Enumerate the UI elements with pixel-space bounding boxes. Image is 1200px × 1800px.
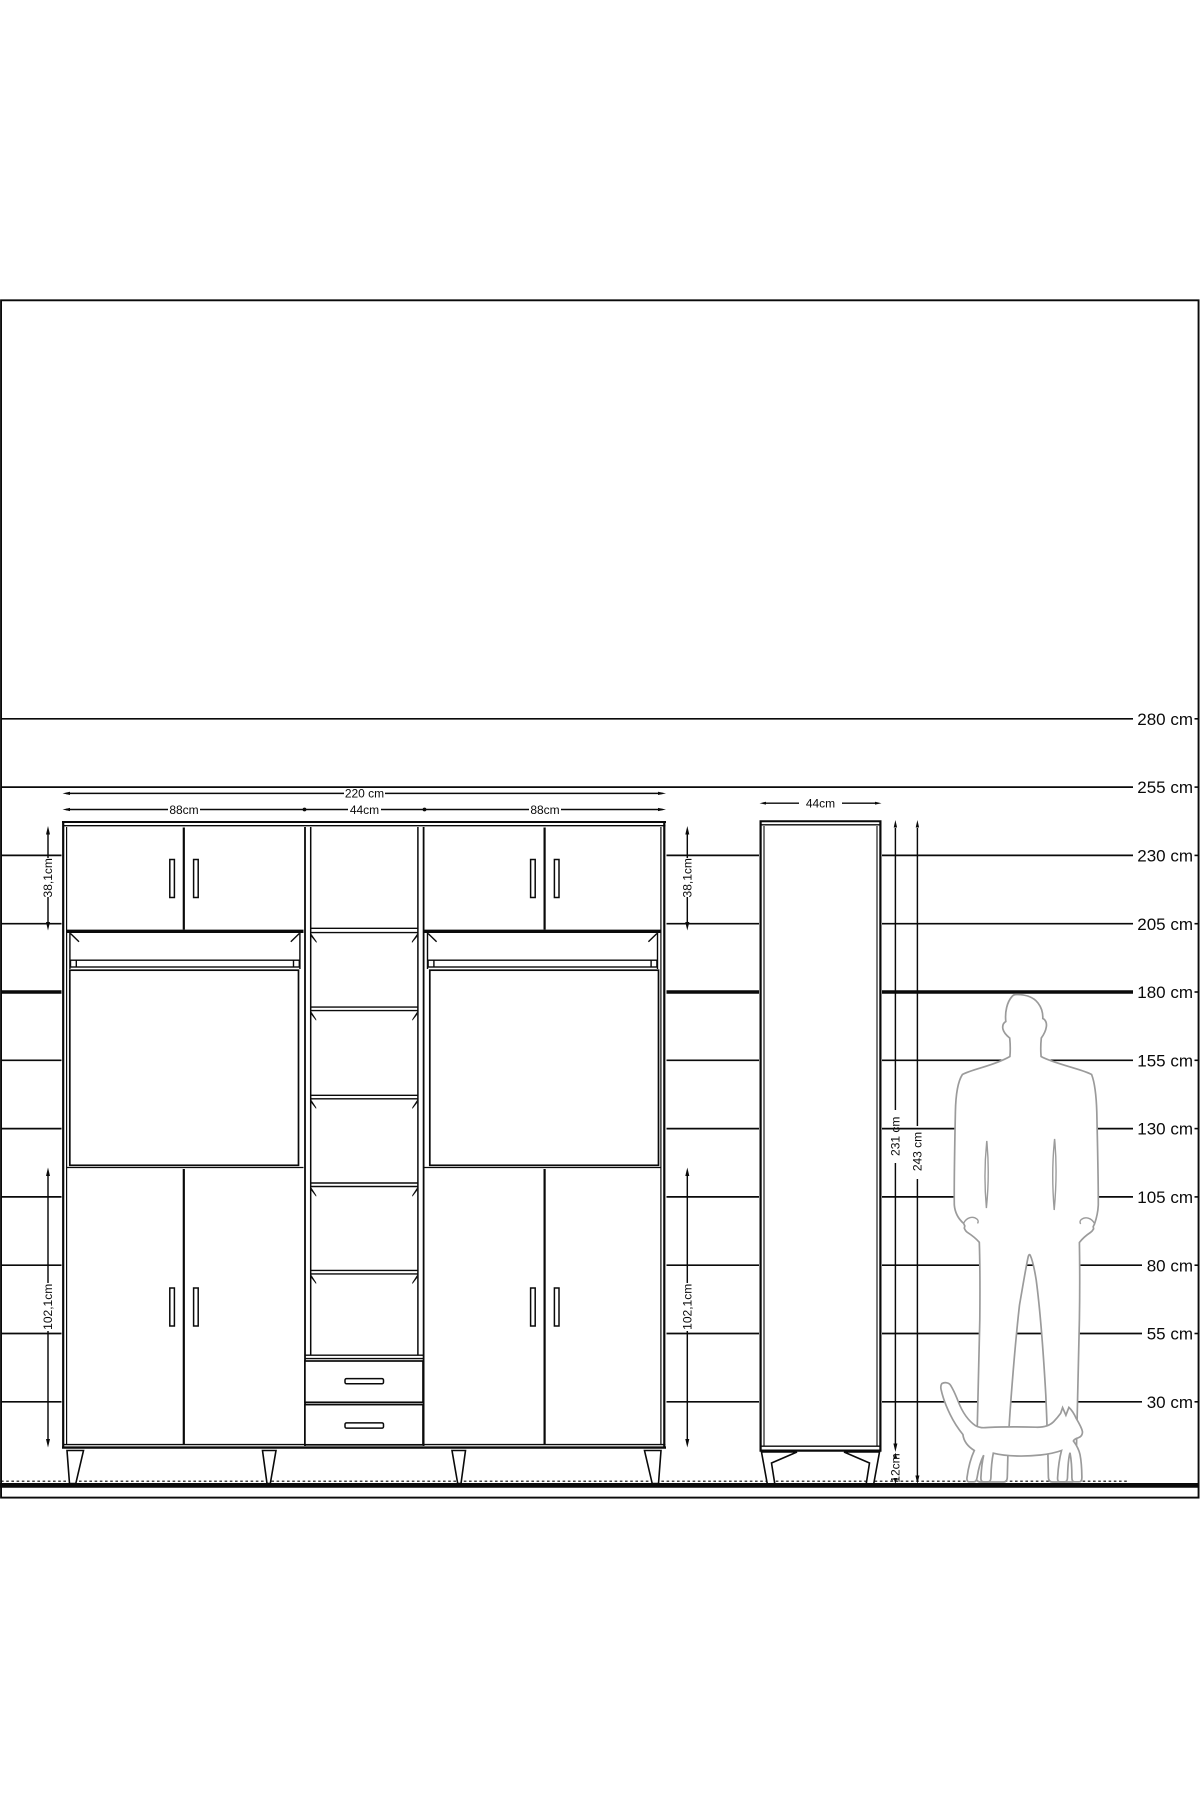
svg-text:55 cm: 55 cm xyxy=(1147,1325,1193,1344)
svg-text:180 cm: 180 cm xyxy=(1137,983,1193,1002)
svg-text:44cm: 44cm xyxy=(350,803,379,817)
svg-text:102,1cm: 102,1cm xyxy=(681,1284,695,1330)
svg-text:280 cm: 280 cm xyxy=(1137,710,1193,729)
svg-text:130 cm: 130 cm xyxy=(1137,1120,1193,1139)
svg-text:12cm: 12cm xyxy=(889,1453,903,1482)
svg-text:38,1cm: 38,1cm xyxy=(681,858,695,897)
svg-text:102,1cm: 102,1cm xyxy=(41,1284,55,1330)
svg-text:205 cm: 205 cm xyxy=(1137,915,1193,934)
svg-text:243 cm: 243 cm xyxy=(911,1132,925,1171)
svg-text:155 cm: 155 cm xyxy=(1137,1051,1193,1070)
svg-text:88cm: 88cm xyxy=(530,803,559,817)
svg-text:88cm: 88cm xyxy=(169,803,198,817)
svg-text:230 cm: 230 cm xyxy=(1137,847,1193,866)
svg-text:30 cm: 30 cm xyxy=(1147,1393,1193,1412)
svg-text:220 cm: 220 cm xyxy=(345,787,384,801)
svg-text:80 cm: 80 cm xyxy=(1147,1256,1193,1275)
svg-text:44cm: 44cm xyxy=(806,797,835,811)
svg-text:105 cm: 105 cm xyxy=(1137,1188,1193,1207)
svg-text:38,1cm: 38,1cm xyxy=(41,858,55,897)
svg-text:231 cm: 231 cm xyxy=(889,1117,903,1156)
svg-text:255 cm: 255 cm xyxy=(1137,778,1193,797)
